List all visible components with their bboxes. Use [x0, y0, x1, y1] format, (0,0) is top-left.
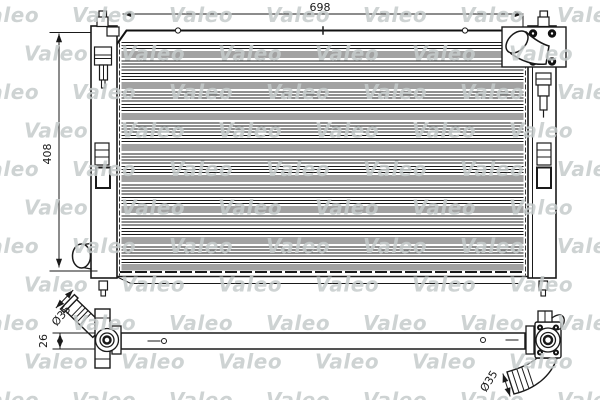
valeo-watermark: Valeo — [218, 42, 282, 66]
depth-dimension-label: 26 — [37, 334, 50, 348]
valeo-watermark: Valeo — [0, 80, 39, 104]
valeo-watermark: Valeo — [363, 234, 427, 258]
top-plate-hole — [462, 28, 467, 33]
valeo-watermark: Valeo — [315, 350, 379, 374]
valeo-watermark: Valeo — [315, 119, 379, 143]
valeo-watermark: Valeo — [460, 80, 524, 104]
valeo-watermark: Valeo — [0, 3, 39, 27]
right-top-mounting-pin — [538, 17, 549, 27]
dimension-depth-26: 26 — [37, 333, 95, 349]
core-fins — [122, 41, 524, 264]
valeo-watermark: Valeo — [169, 388, 233, 400]
radiator-technical-drawing: 698 408 — [0, 0, 600, 400]
valeo-watermark: Valeo — [266, 311, 330, 335]
valeo-watermark: Valeo — [557, 234, 600, 258]
valeo-watermark: Valeo — [266, 234, 330, 258]
valeo-watermark: Valeo — [24, 196, 88, 220]
valeo-watermark: Valeo — [266, 388, 330, 400]
valeo-watermark: Valeo — [24, 42, 88, 66]
valeo-watermark: Valeo — [412, 119, 476, 143]
crossmember-hole — [481, 338, 486, 343]
valeo-watermark: Valeo — [121, 42, 185, 66]
valeo-watermark: Valeo — [460, 234, 524, 258]
core-bottom-band — [122, 264, 524, 271]
valeo-watermark: Valeo — [266, 80, 330, 104]
valeo-watermark: Valeo — [24, 273, 88, 297]
valeo-watermark: Valeo — [266, 3, 330, 27]
valeo-watermark: Valeo — [72, 234, 136, 258]
valeo-watermark: Valeo — [218, 350, 282, 374]
valeo-watermark: Valeo — [72, 157, 136, 181]
valeo-watermark: Valeo — [509, 273, 573, 297]
valeo-watermark: Valeo — [169, 234, 233, 258]
valeo-watermark: Valeo — [460, 311, 524, 335]
valeo-watermark: Valeo — [412, 350, 476, 374]
valeo-watermark: Valeo — [0, 234, 39, 258]
valeo-watermark: Valeo — [72, 388, 136, 400]
valeo-watermark: Valeo — [121, 119, 185, 143]
valeo-watermark: Valeo — [509, 350, 573, 374]
valeo-watermark: Valeo — [72, 3, 136, 27]
valeo-watermark: Valeo — [315, 42, 379, 66]
valeo-watermark: Valeo — [509, 42, 573, 66]
top-plate-hole — [175, 28, 180, 33]
valeo-watermark: Valeo — [121, 350, 185, 374]
valeo-watermark: Valeo — [121, 273, 185, 297]
valeo-watermark: Valeo — [169, 311, 233, 335]
valeo-watermark: Valeo — [0, 388, 39, 400]
valeo-watermark: Valeo — [509, 119, 573, 143]
valeo-watermark: Valeo — [557, 311, 600, 335]
lower-crossmember-bar — [121, 333, 525, 349]
left-bottom-pin-tip — [101, 290, 106, 296]
valeo-watermark: Valeo — [218, 273, 282, 297]
valeo-watermark: Valeo — [121, 196, 185, 220]
valeo-watermark: Valeo — [460, 3, 524, 27]
left-bottom-mounting-pin — [99, 281, 108, 290]
valeo-watermark: Valeo — [266, 157, 330, 181]
valeo-watermark: Valeo — [0, 157, 39, 181]
valeo-watermark: Valeo — [169, 3, 233, 27]
valeo-watermark: Valeo — [24, 350, 88, 374]
technical-drawing-canvas: 698 408 — [0, 0, 600, 400]
valeo-watermark: Valeo — [363, 80, 427, 104]
valeo-watermark: Valeo — [315, 196, 379, 220]
valeo-watermark: Valeo — [24, 119, 88, 143]
valeo-watermark: Valeo — [169, 157, 233, 181]
valeo-watermark: Valeo — [363, 157, 427, 181]
crossmember-hole — [162, 339, 167, 344]
valeo-watermark: Valeo — [218, 196, 282, 220]
right-mounting-brackets — [537, 143, 551, 188]
valeo-watermark: Valeo — [557, 80, 600, 104]
valeo-watermark: Valeo — [363, 311, 427, 335]
valeo-watermark: Valeo — [72, 311, 136, 335]
valeo-watermark: Valeo — [557, 388, 600, 400]
valeo-watermark: Valeo — [509, 196, 573, 220]
valeo-watermark: Valeo — [72, 80, 136, 104]
valeo-watermark: Valeo — [363, 3, 427, 27]
height-dimension-label: 408 — [41, 144, 54, 165]
valeo-watermark: Valeo — [218, 119, 282, 143]
valeo-watermark: Valeo — [557, 157, 600, 181]
valeo-watermark: Valeo — [363, 388, 427, 400]
valeo-watermark: Valeo — [0, 311, 39, 335]
valeo-watermark: Valeo — [412, 196, 476, 220]
left-top-bracket — [107, 27, 119, 36]
valeo-watermark: Valeo — [412, 273, 476, 297]
valeo-watermark: Valeo — [169, 80, 233, 104]
valeo-watermark: Valeo — [460, 388, 524, 400]
valeo-watermark: Valeo — [557, 3, 600, 27]
valeo-watermark: Valeo — [315, 273, 379, 297]
valeo-watermark: Valeo — [460, 157, 524, 181]
radiator-bottom-view: Ø35 26 — [37, 290, 564, 396]
valeo-watermark: Valeo — [412, 42, 476, 66]
